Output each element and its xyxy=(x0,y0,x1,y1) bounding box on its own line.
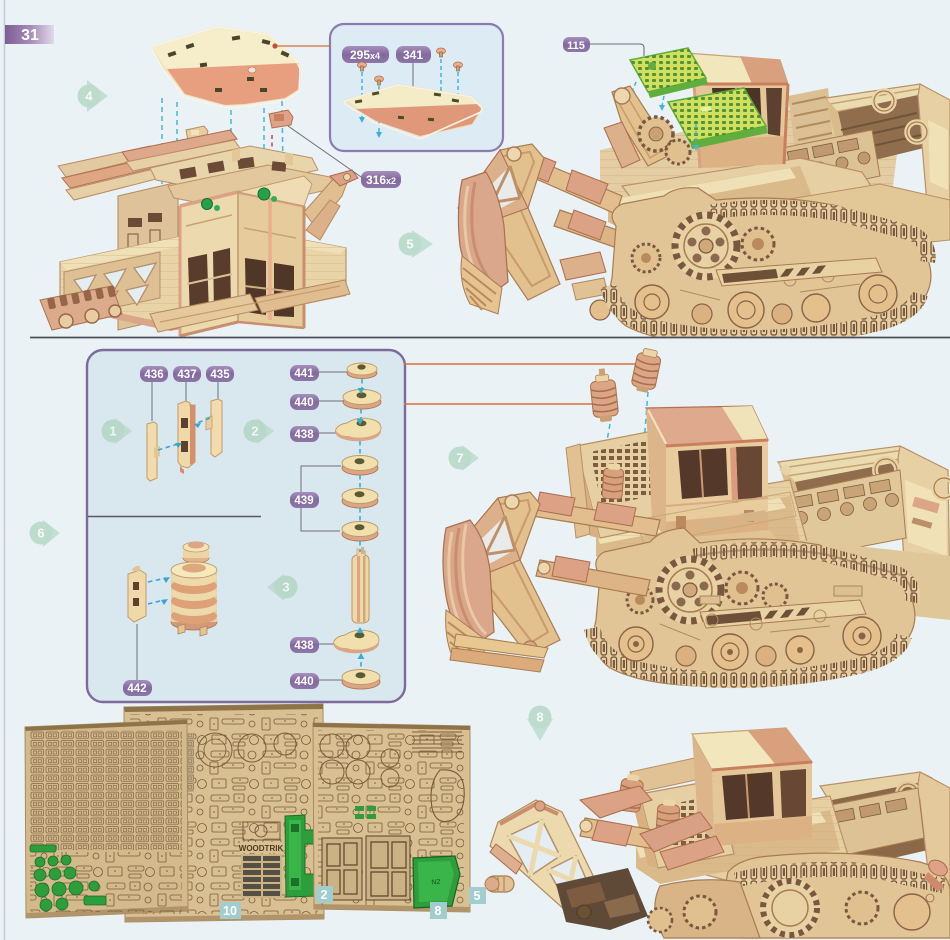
svg-text:1: 1 xyxy=(109,424,116,439)
svg-text:442: 442 xyxy=(127,683,146,695)
svg-text:3: 3 xyxy=(282,580,289,595)
svg-text:436: 436 xyxy=(144,369,163,381)
svg-text:295x4: 295x4 xyxy=(350,48,380,62)
svg-text:441: 441 xyxy=(294,368,314,380)
svg-text:439: 439 xyxy=(294,495,313,507)
svg-text:435: 435 xyxy=(210,369,230,381)
svg-text:341: 341 xyxy=(403,48,423,62)
svg-text:7: 7 xyxy=(456,451,463,466)
svg-text:4: 4 xyxy=(85,89,93,104)
svg-text:316x2: 316x2 xyxy=(366,173,396,187)
svg-text:N2: N2 xyxy=(431,879,441,887)
svg-text:440: 440 xyxy=(294,397,313,409)
svg-text:438: 438 xyxy=(294,429,314,441)
svg-text:438: 438 xyxy=(294,640,314,652)
svg-text:115: 115 xyxy=(567,40,585,52)
svg-text:2: 2 xyxy=(251,424,258,439)
svg-text:5: 5 xyxy=(406,237,413,252)
svg-text:8: 8 xyxy=(536,710,543,725)
svg-text:8: 8 xyxy=(435,904,442,918)
svg-text:437: 437 xyxy=(177,369,196,381)
svg-text:2: 2 xyxy=(321,888,328,902)
svg-text:6: 6 xyxy=(37,526,44,541)
svg-text:440: 440 xyxy=(294,676,313,688)
svg-text:31: 31 xyxy=(21,27,39,44)
svg-text:5: 5 xyxy=(474,889,481,903)
svg-text:WOODTRIK: WOODTRIK xyxy=(239,844,284,853)
svg-text:10: 10 xyxy=(223,904,237,918)
